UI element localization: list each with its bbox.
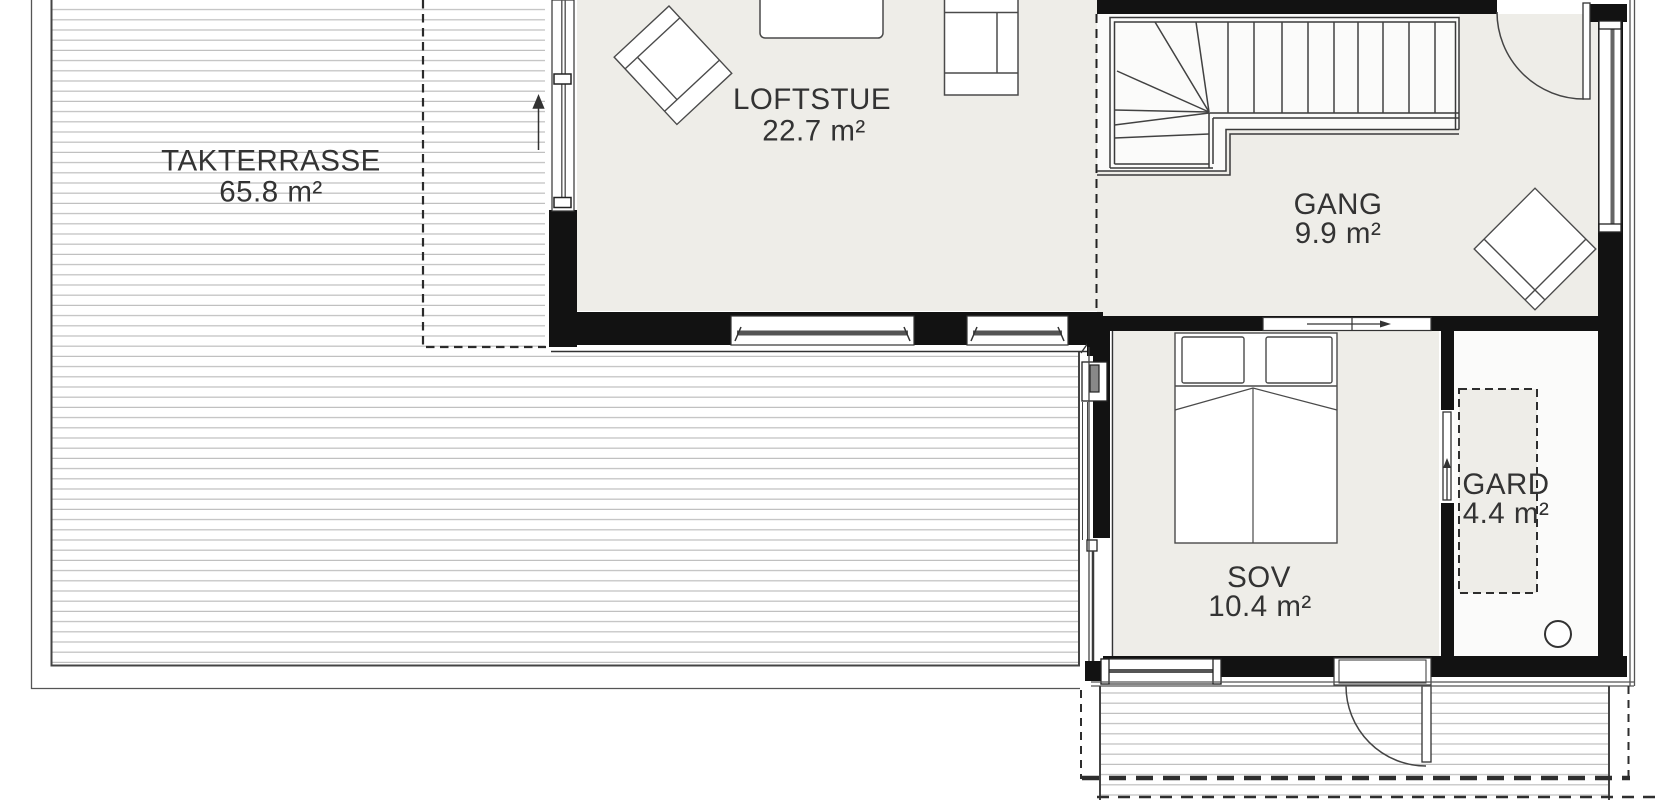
svg-text:65.8 m²: 65.8 m² — [219, 176, 323, 209]
svg-text:9.9 m²: 9.9 m² — [1295, 217, 1382, 250]
svg-text:TAKTERRASSE: TAKTERRASSE — [161, 145, 381, 178]
svg-text:4.4 m²: 4.4 m² — [1463, 497, 1550, 530]
svg-text:22.7 m²: 22.7 m² — [762, 115, 866, 148]
svg-text:10.4 m²: 10.4 m² — [1208, 590, 1312, 623]
svg-text:LOFTSTUE: LOFTSTUE — [733, 83, 891, 116]
